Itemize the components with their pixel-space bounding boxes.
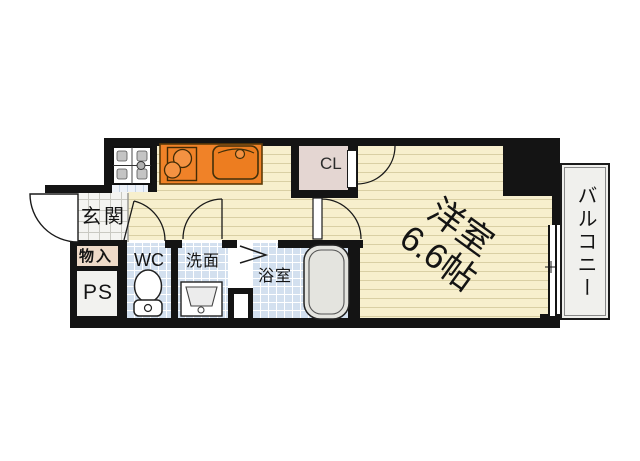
washroom-label: 洗面 <box>186 254 220 270</box>
floor-plan: 玄関 物入 PS WC 洗面 浴室 CL 洋室 6.6帖 バルコニー <box>0 0 640 461</box>
bathtub-icon <box>304 245 349 319</box>
closet-door-swing-icon <box>357 146 395 184</box>
wc-door-swing-icon <box>124 201 165 241</box>
kitchen-counter <box>160 144 262 184</box>
window-latch-icon <box>545 261 557 273</box>
balcony-label: バルコニー <box>560 168 610 316</box>
bathroom-label: 浴室 <box>258 269 292 285</box>
washroom-door-swing-icon <box>183 199 222 239</box>
folding-door-icon <box>240 246 266 263</box>
pipe-space-label: PS <box>83 282 113 303</box>
toilet-label: WC <box>134 251 164 269</box>
entrance-label: 玄関 <box>81 207 127 227</box>
toilet-icon <box>134 270 162 316</box>
vanity-sink-icon <box>181 282 222 316</box>
storage-label: 物入 <box>79 249 113 264</box>
washing-machine-icon <box>113 147 151 184</box>
kitchen-sink-icon <box>213 146 258 179</box>
room-door-swing-icon <box>313 198 361 239</box>
closet-label: CL <box>320 155 342 172</box>
fixtures-layer <box>0 0 640 461</box>
entrance-door-swing-icon <box>30 194 78 242</box>
